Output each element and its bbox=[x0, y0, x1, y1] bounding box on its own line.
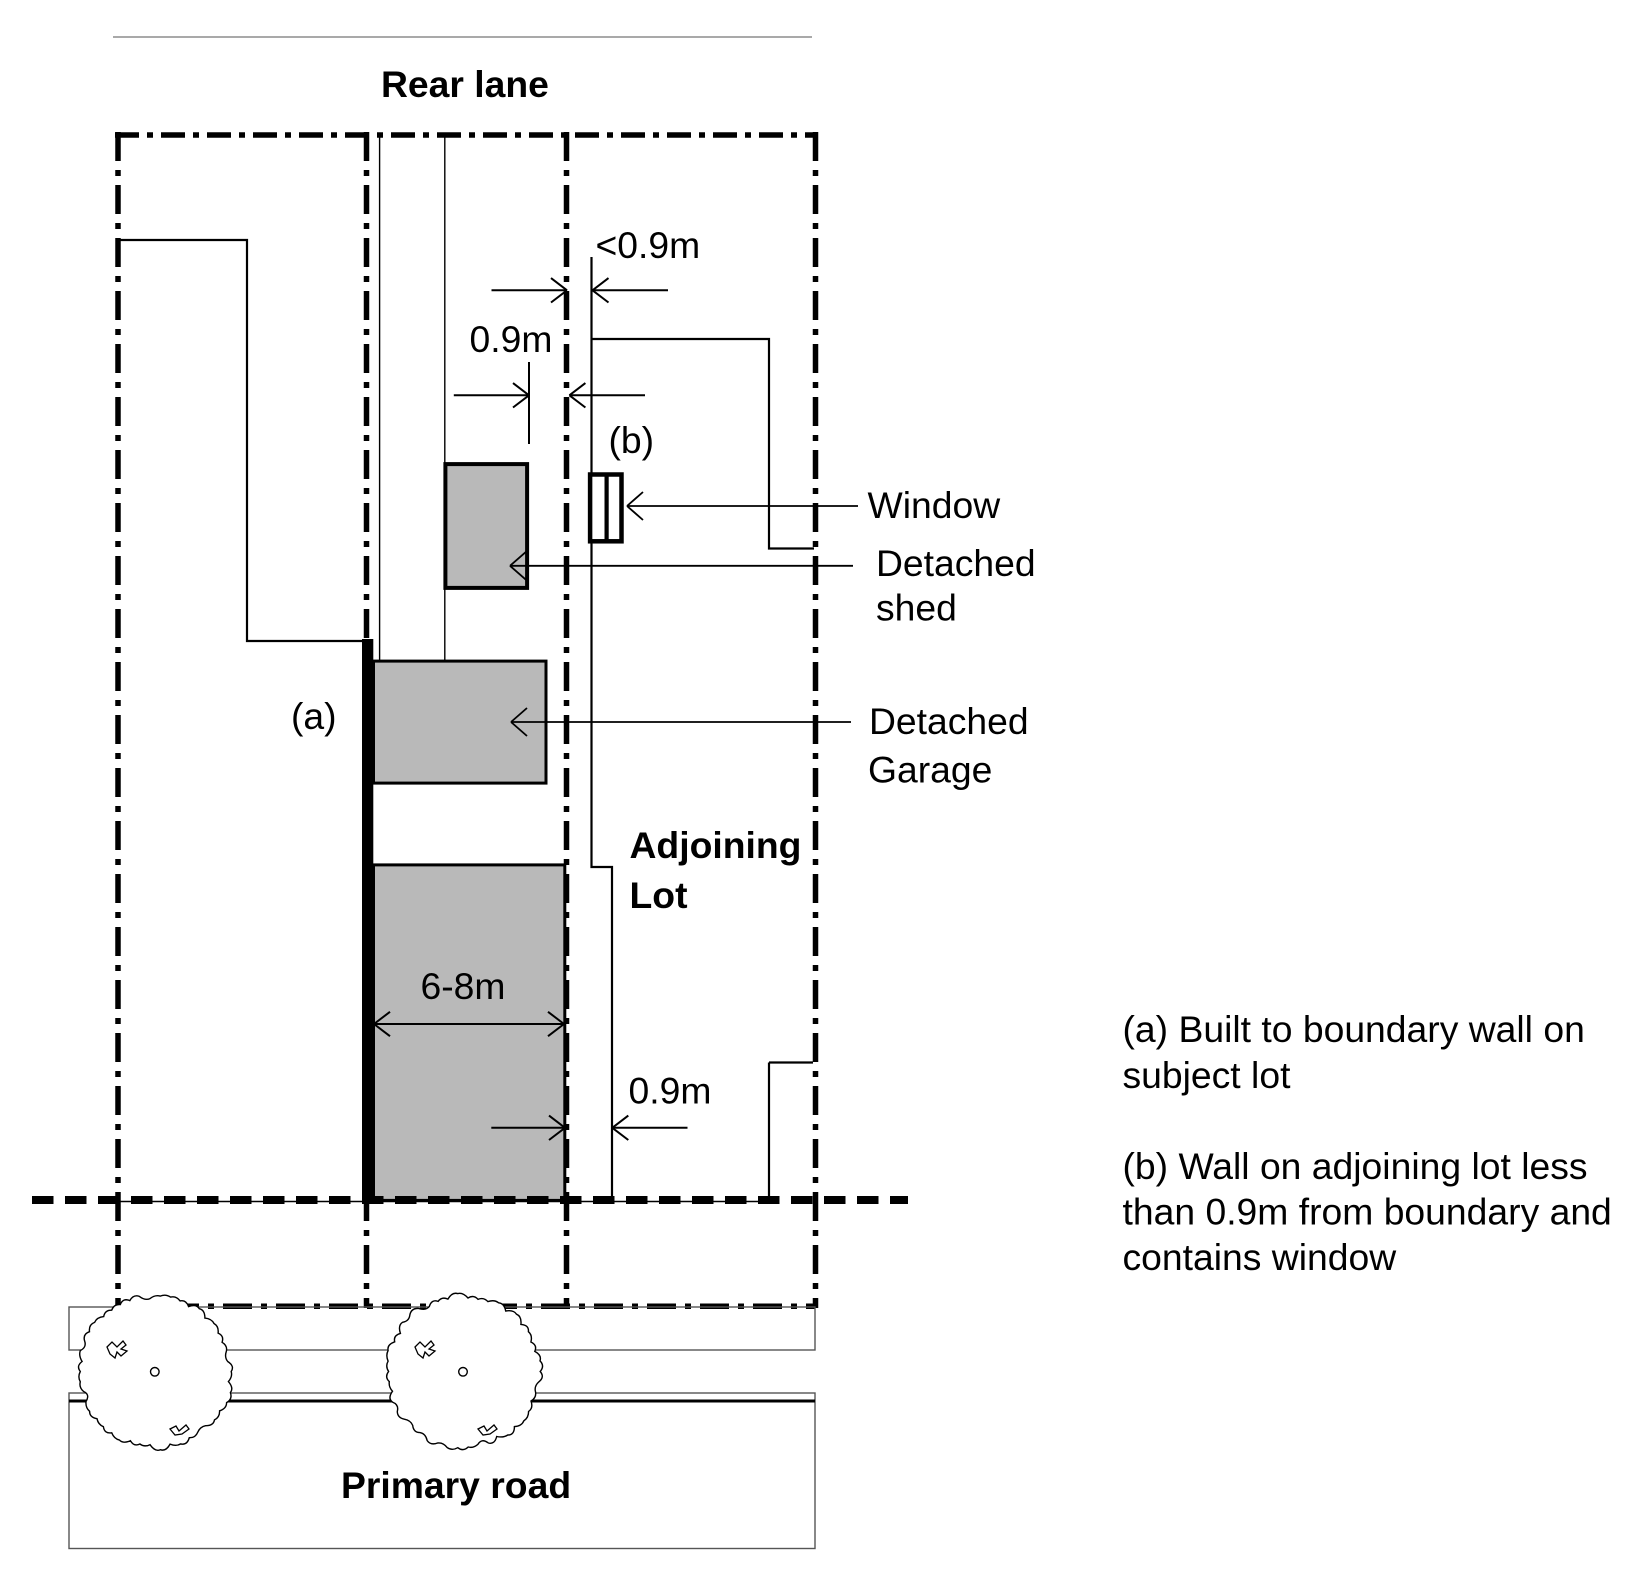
svg-text:Adjoining: Adjoining bbox=[630, 824, 802, 866]
svg-text:contains window: contains window bbox=[1123, 1236, 1398, 1278]
svg-text:Lot: Lot bbox=[630, 874, 688, 916]
svg-text:Rear lane: Rear lane bbox=[381, 63, 549, 105]
svg-text:Detached: Detached bbox=[876, 542, 1036, 584]
svg-text:subject lot: subject lot bbox=[1123, 1054, 1292, 1096]
svg-text:0.9m: 0.9m bbox=[629, 1070, 712, 1112]
svg-text:0.9m: 0.9m bbox=[470, 318, 553, 360]
svg-text:Garage: Garage bbox=[868, 749, 992, 791]
svg-text:(a): (a) bbox=[291, 695, 337, 737]
svg-text:Primary road: Primary road bbox=[341, 1464, 571, 1506]
svg-text:6-8m: 6-8m bbox=[421, 965, 506, 1007]
svg-text:(b): (b) bbox=[609, 419, 655, 461]
svg-text:than 0.9m from boundary and: than 0.9m from boundary and bbox=[1123, 1191, 1612, 1233]
svg-text:Detached: Detached bbox=[869, 700, 1029, 742]
svg-text:Window: Window bbox=[868, 484, 1002, 526]
svg-text:(a) Built to boundary wall on: (a) Built to boundary wall on bbox=[1123, 1008, 1585, 1050]
svg-text:(b) Wall on adjoining lot less: (b) Wall on adjoining lot less bbox=[1123, 1145, 1588, 1187]
svg-text:shed: shed bbox=[876, 587, 957, 629]
svg-text:<0.9m: <0.9m bbox=[596, 224, 701, 266]
